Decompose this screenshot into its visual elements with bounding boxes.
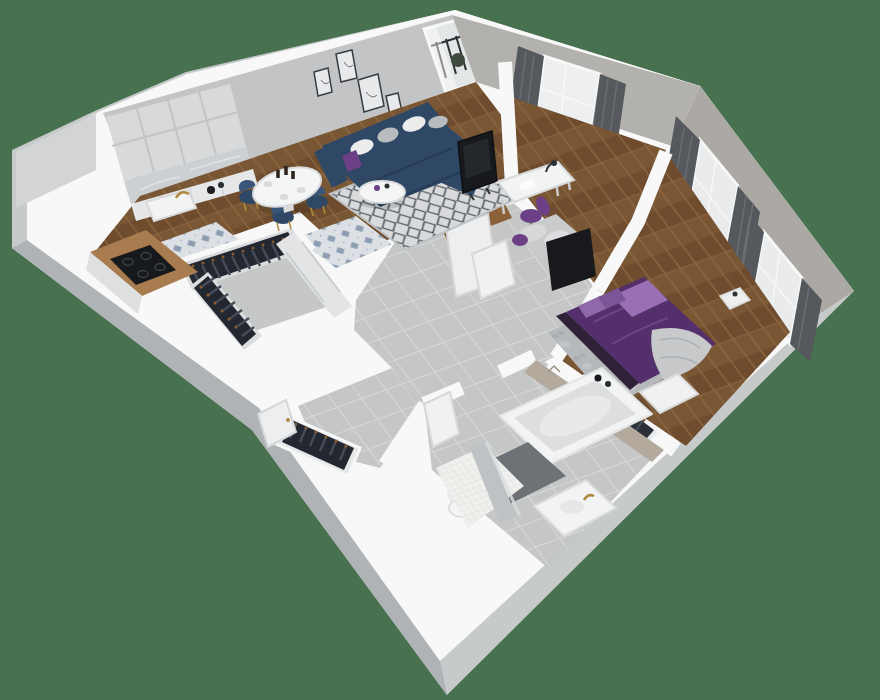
floor-plan-canvas: [0, 0, 880, 700]
vanity-sink: [560, 500, 584, 514]
coffee-table-top: [359, 181, 405, 203]
living-office-partition: [505, 62, 512, 186]
bath-bottle: [605, 381, 611, 387]
daybed-purple-cushion: [512, 234, 528, 246]
vase: [374, 185, 380, 191]
bath-bottle: [595, 375, 602, 382]
kettle: [207, 186, 215, 194]
coffee-table: [359, 181, 405, 209]
apartment-3d-floor-plan: [0, 0, 880, 700]
desk-lamp-head: [551, 160, 557, 166]
balcony-plant: [451, 53, 465, 67]
nightstand-lamp: [733, 292, 738, 297]
coffee-maker: [218, 182, 224, 188]
chair-seat: [520, 209, 542, 223]
vase: [385, 184, 390, 189]
door-handle: [286, 418, 290, 422]
